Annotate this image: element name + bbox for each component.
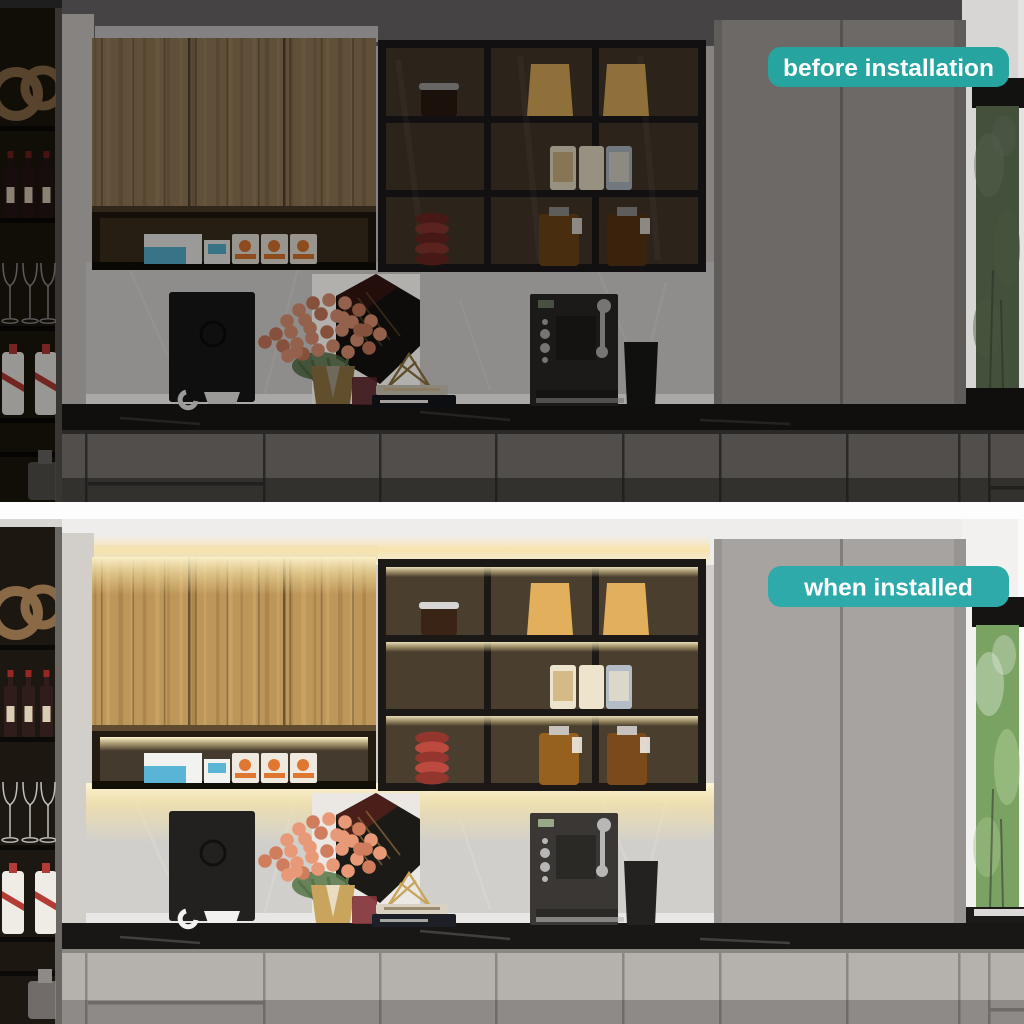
- svg-text:when installed: when installed: [803, 575, 973, 602]
- svg-text:before installation: before installation: [783, 55, 994, 82]
